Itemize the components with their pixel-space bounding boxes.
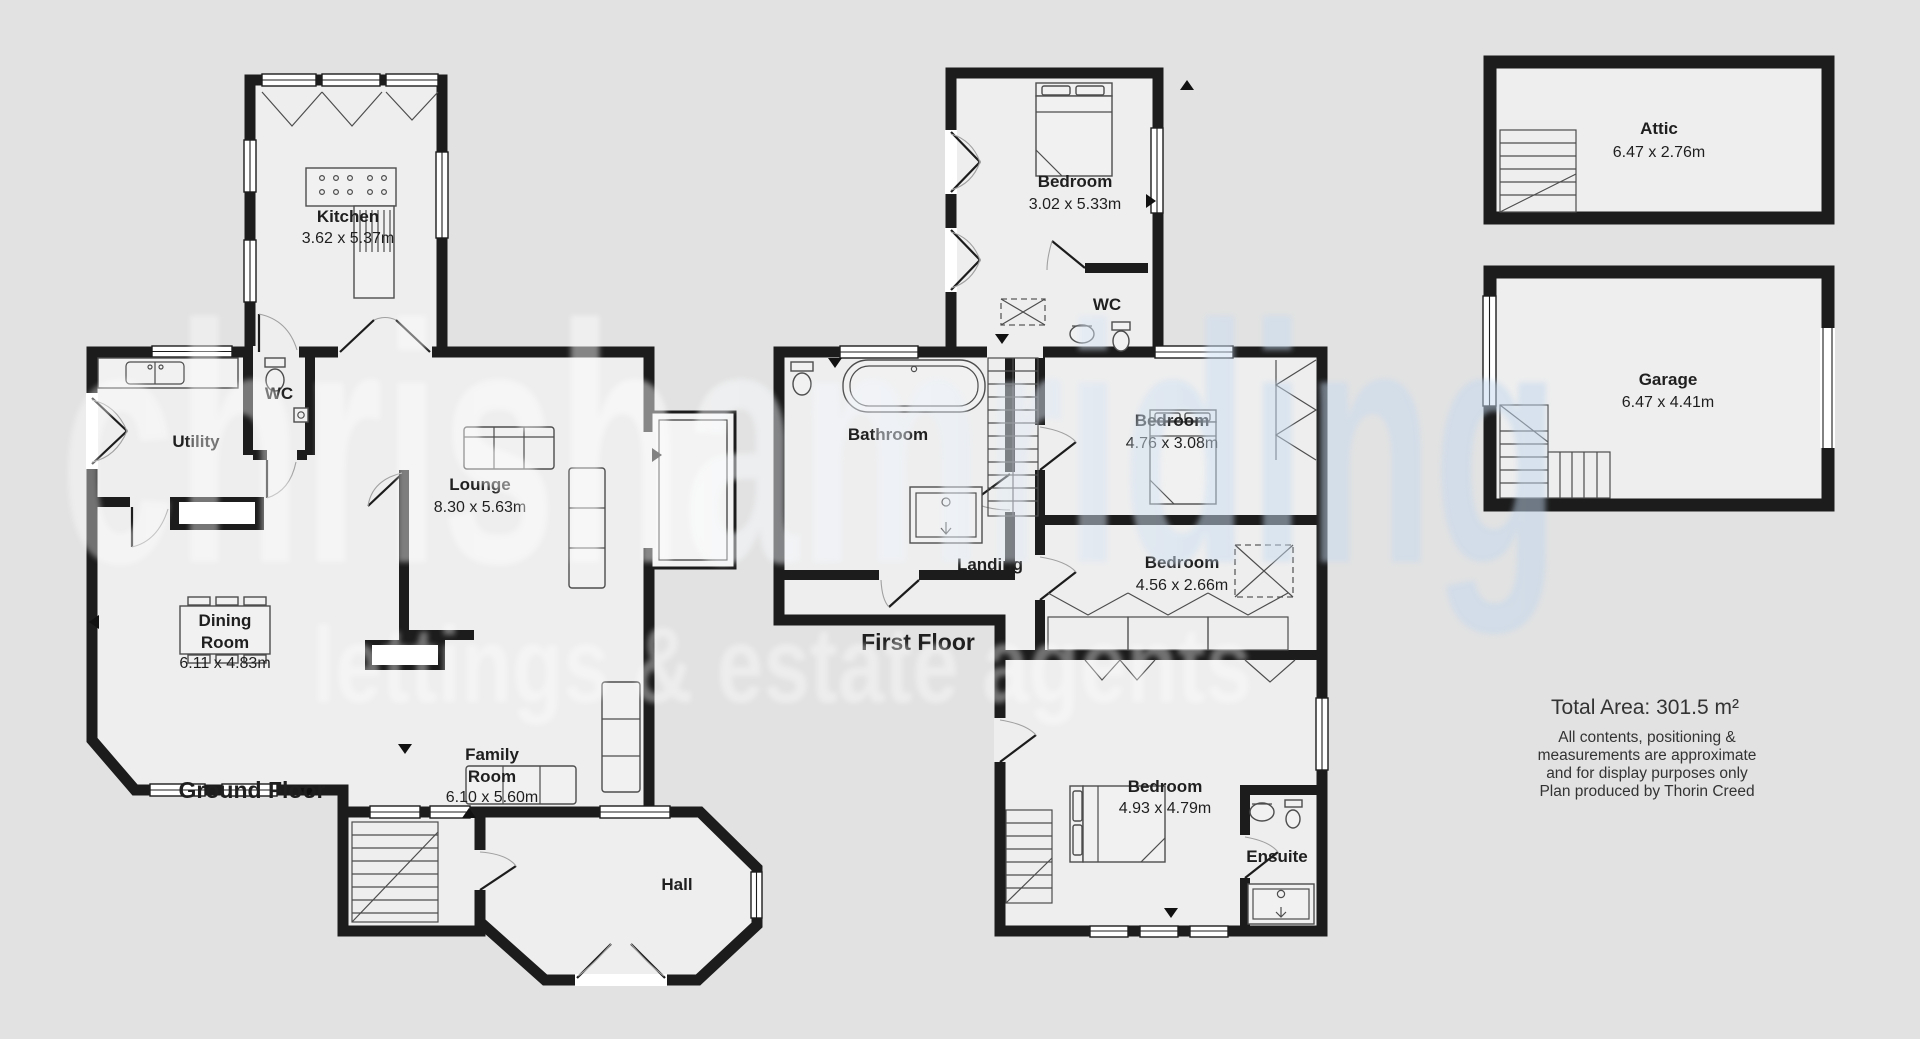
watermark-tagline: lettings & estate agents	[312, 604, 1252, 725]
garage-door-opening	[1820, 328, 1835, 448]
disclaimer-line-2: measurements are approximate	[1538, 747, 1757, 764]
attic-label: Attic	[1640, 119, 1678, 138]
floorplan-page: Kitchen 3.62 x 5.37m Utility WC Lounge 8…	[0, 0, 1920, 1039]
summary-block: Total Area: 301.5 m² All contents, posit…	[1538, 696, 1757, 800]
hall-label: Hall	[661, 875, 692, 894]
attic-plan: Attic 6.47 x 2.76m	[1490, 62, 1828, 218]
bed-master-label: Bedroom	[1128, 777, 1203, 796]
kitchen-dims: 3.62 x 5.37m	[302, 230, 395, 247]
disclaimer-line-4: Plan produced by Thorin Creed	[1539, 783, 1754, 800]
total-area: Total Area: 301.5 m²	[1551, 696, 1739, 719]
watermark-brand: chrishamriding	[60, 255, 1560, 636]
dining-label-2: Room	[201, 633, 249, 652]
bed-master	[1070, 786, 1165, 862]
family-label-1: Family	[465, 745, 519, 764]
bed-top-dims: 3.02 x 5.33m	[1029, 196, 1122, 213]
kitchen-label: Kitchen	[317, 207, 379, 226]
hall-room	[480, 812, 757, 980]
family-label-2: Room	[468, 767, 516, 786]
disclaimer-line-1: All contents, positioning &	[1558, 729, 1736, 746]
bed-top	[1036, 83, 1112, 176]
garage-label: Garage	[1639, 370, 1698, 389]
family-dims: 6.10 x 5.60m	[446, 789, 539, 806]
attic-dims: 6.47 x 2.76m	[1613, 144, 1706, 161]
bed-master-dims: 4.93 x 4.79m	[1119, 800, 1212, 817]
garage-dims: 6.47 x 4.41m	[1622, 394, 1715, 411]
floorplan-canvas: Kitchen 3.62 x 5.37m Utility WC Lounge 8…	[0, 0, 1920, 1039]
dining-dims: 6.11 x 4.83m	[179, 655, 270, 672]
ensuite-label: Ensuite	[1246, 847, 1307, 866]
ground-floor-label: Ground Floor	[179, 777, 326, 803]
disclaimer-line-3: and for display purposes only	[1546, 765, 1748, 782]
bed-top-label: Bedroom	[1038, 172, 1113, 191]
